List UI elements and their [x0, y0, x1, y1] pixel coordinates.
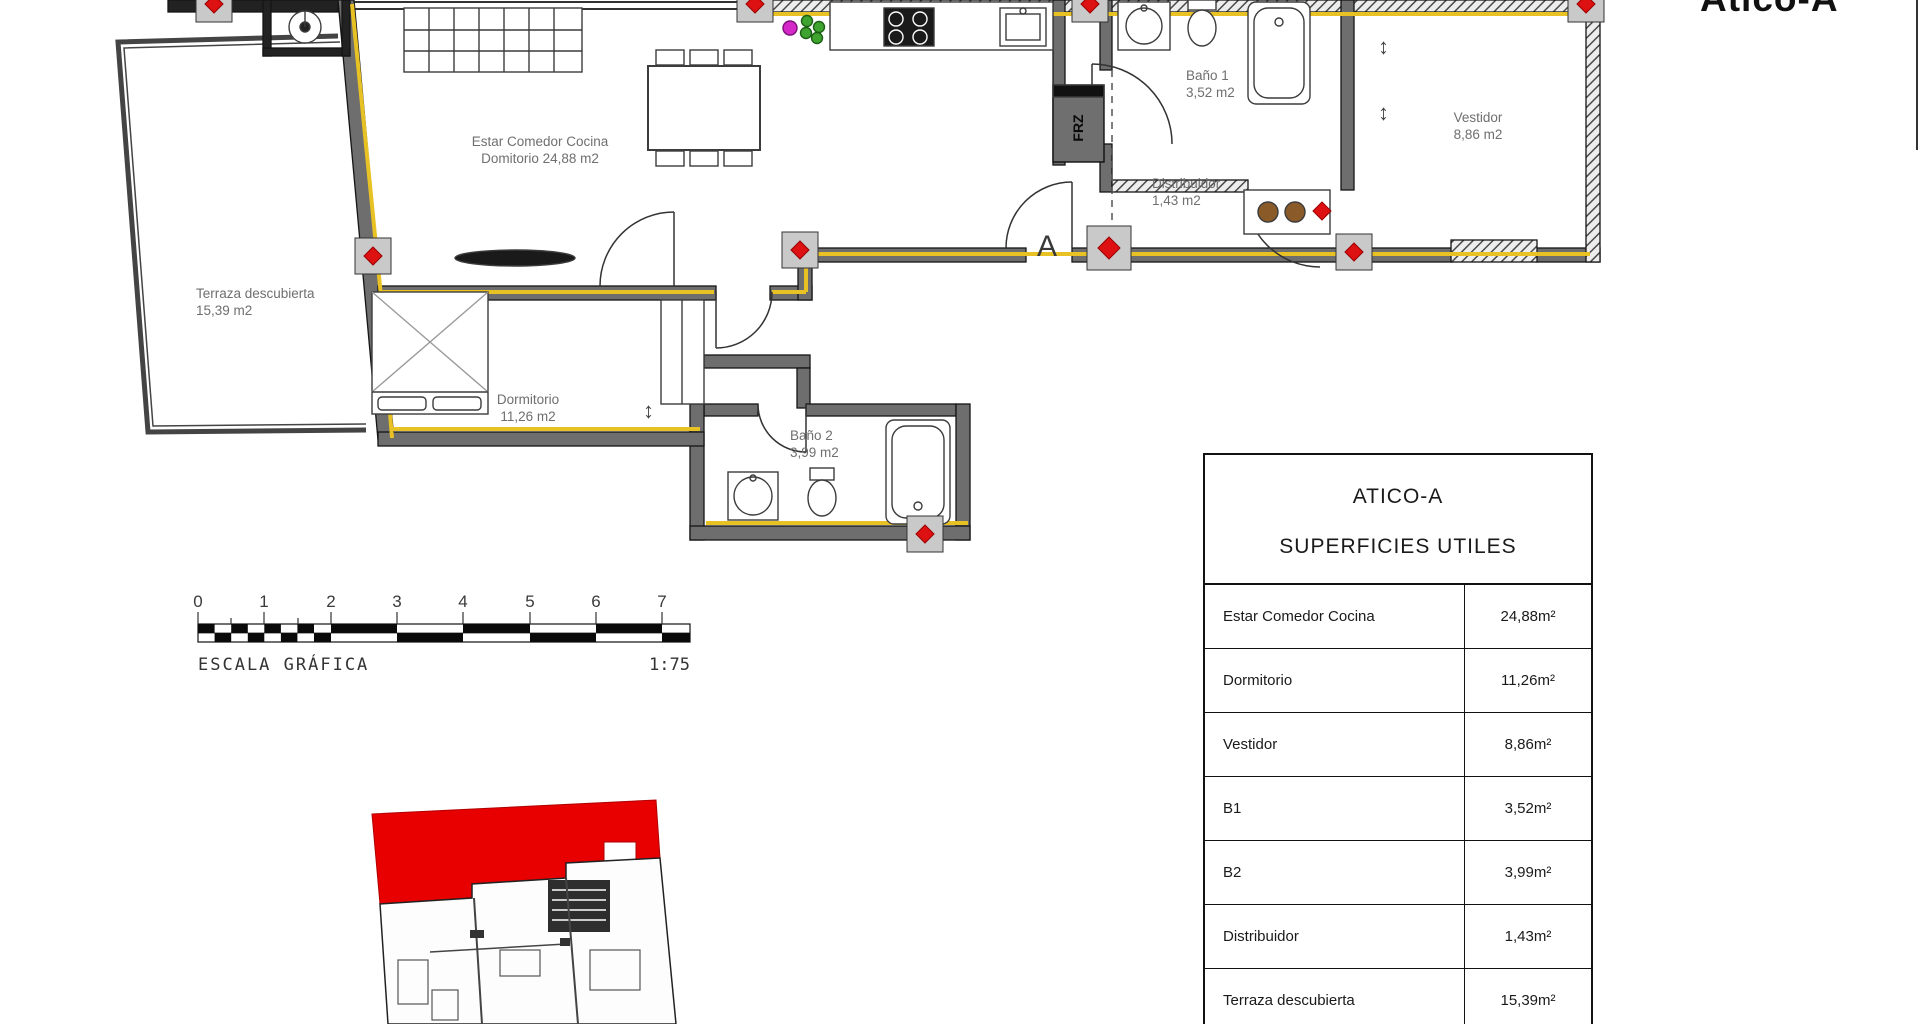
key-plan: [372, 800, 676, 1024]
title-block-rule: [1916, 0, 1918, 150]
svg-text:Domitorio 24,88 m2: Domitorio 24,88 m2: [481, 151, 599, 166]
bath2-fixtures: [728, 420, 950, 524]
updown-arrow-icon: ↕: [643, 398, 654, 423]
row-value: 8,86m²: [1464, 713, 1591, 776]
table-subtitle: SUPERFICIES UTILES: [1205, 509, 1591, 559]
sheet: Estar Comedor Cocina Domitorio 24,88 m2 …: [0, 0, 1920, 1024]
label-bano1: Baño 1: [1186, 68, 1229, 83]
label-vestidor: Vestidor: [1454, 110, 1503, 125]
row-name: Estar Comedor Cocina: [1205, 585, 1464, 648]
label-estar: Estar Comedor Cocina: [472, 134, 609, 149]
plant-icons: [783, 16, 825, 44]
dining-table: [648, 50, 760, 166]
svg-text:8,86 m2: 8,86 m2: [1454, 127, 1503, 142]
bed: [372, 292, 488, 414]
row-name: B1: [1205, 777, 1464, 840]
svg-text:3,52 m2: 3,52 m2: [1186, 85, 1235, 100]
row-value: 15,39m²: [1464, 969, 1591, 1024]
table-row: Vestidor 8,86m²: [1205, 713, 1591, 777]
closet: [661, 300, 704, 404]
svg-text:3,99 m2: 3,99 m2: [790, 445, 839, 460]
terrace-outline: [118, 36, 366, 432]
svg-text:2: 2: [326, 592, 335, 611]
sheet-title: Atico-A: [1700, 0, 1839, 20]
scale-caption: ESCALA GRÁFICA: [198, 653, 369, 675]
boiler-icon: [289, 11, 321, 43]
svg-text:11,26 m2: 11,26 m2: [500, 409, 555, 424]
svg-text:1: 1: [259, 592, 268, 611]
label-terraza: Terraza descubierta: [196, 286, 315, 301]
row-name: Dormitorio: [1205, 649, 1464, 712]
table-row: Estar Comedor Cocina 24,88m²: [1205, 585, 1591, 649]
updown-arrow-icon: ↕: [1378, 100, 1389, 125]
sideboard: [455, 250, 575, 266]
table-row: B2 3,99m²: [1205, 841, 1591, 905]
stair-core: [548, 880, 610, 932]
table-row: Distribuidor 1,43m²: [1205, 905, 1591, 969]
row-value: 11,26m²: [1464, 649, 1591, 712]
row-name: Distribuidor: [1205, 905, 1464, 968]
table-row: Terraza descubierta 15,39m²: [1205, 969, 1591, 1024]
surfaces-table-header: ATICO-A SUPERFICIES UTILES: [1205, 455, 1591, 585]
svg-text:6: 6: [591, 592, 600, 611]
svg-text:0: 0: [193, 592, 202, 611]
floor-plan-drawing: Estar Comedor Cocina Domitorio 24,88 m2 …: [0, 0, 1920, 1024]
sofa: [404, 8, 582, 72]
row-name: Vestidor: [1205, 713, 1464, 776]
section-letter: A: [1037, 230, 1057, 263]
svg-text:4: 4: [458, 592, 467, 611]
row-value: 3,99m²: [1464, 841, 1591, 904]
label-dormitorio: Dormitorio: [497, 392, 559, 407]
table-row: Dormitorio 11,26m²: [1205, 649, 1591, 713]
scale-ratio: 1:75: [649, 655, 690, 675]
row-name: Terraza descubierta: [1205, 969, 1464, 1024]
svg-text:3: 3: [392, 592, 401, 611]
svg-text:5: 5: [525, 592, 534, 611]
kitchen-counter: [830, 2, 1053, 50]
fridge-label: FRZ: [1070, 114, 1086, 142]
row-value: 3,52m²: [1464, 777, 1591, 840]
row-value: 24,88m²: [1464, 585, 1591, 648]
label-bano2: Baño 2: [790, 428, 833, 443]
surfaces-table: ATICO-A SUPERFICIES UTILES Estar Comedor…: [1203, 453, 1593, 1024]
scale-ticks: 0 1 2 3 4 5 6 7: [193, 592, 666, 611]
row-name: B2: [1205, 841, 1464, 904]
updown-arrow-icon: ↕: [1378, 34, 1389, 59]
table-row: B1 3,52m²: [1205, 777, 1591, 841]
row-value: 1,43m²: [1464, 905, 1591, 968]
table-title: ATICO-A: [1205, 455, 1591, 509]
svg-text:7: 7: [657, 592, 666, 611]
svg-text:1,43 m2: 1,43 m2: [1152, 193, 1201, 208]
graphic-scale: 0 1 2 3 4 5 6 7 ESCALA GRÁFICA 1:75: [193, 592, 690, 675]
svg-text:15,39 m2: 15,39 m2: [196, 303, 252, 318]
label-distribuidor: Distribuidor: [1152, 176, 1221, 191]
